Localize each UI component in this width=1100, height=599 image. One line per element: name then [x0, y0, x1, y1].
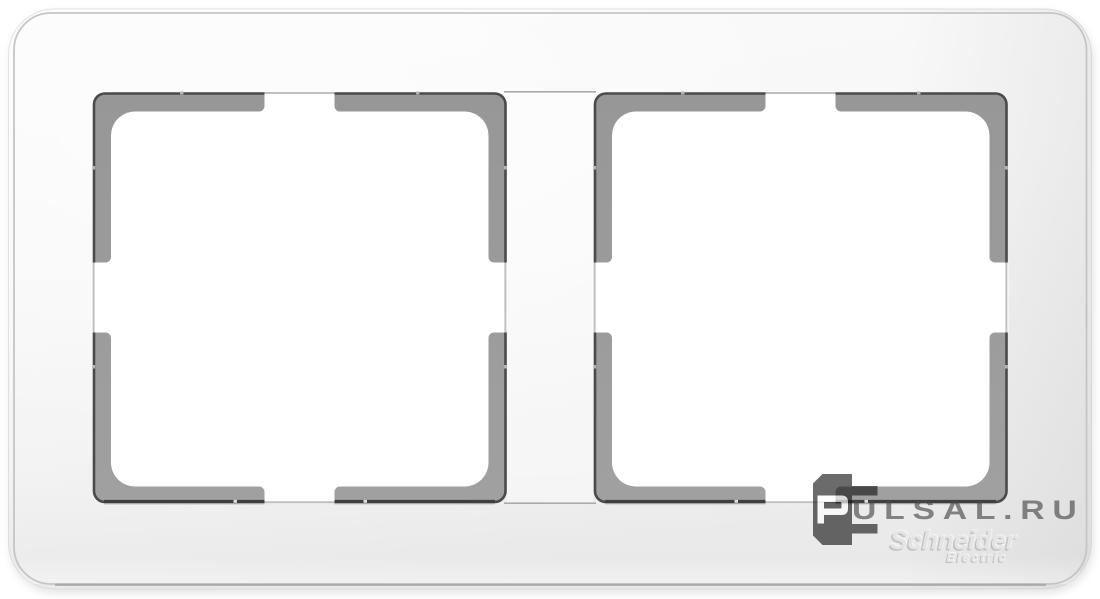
svg-text:Electric: Electric [946, 551, 1007, 565]
svg-text:ULSAL.RU: ULSAL.RU [852, 495, 1085, 525]
